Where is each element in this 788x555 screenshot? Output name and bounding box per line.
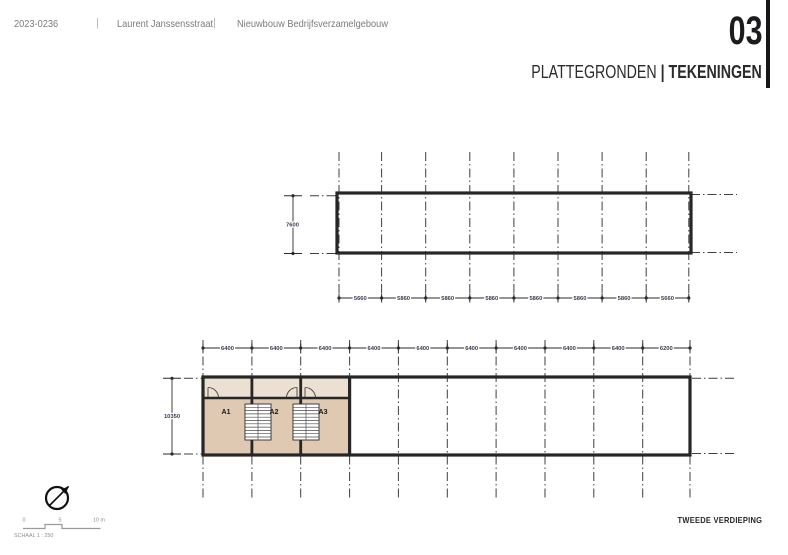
unit-label: A3	[319, 409, 328, 416]
floor-label: TWEEDE VERDIEPING	[677, 515, 762, 525]
dimension-label: 5860	[574, 296, 587, 302]
dimension-label: 6200	[660, 346, 673, 352]
scale-tick-label: 10 m	[93, 518, 105, 524]
dimension-label: 10350	[164, 414, 180, 420]
dimension-label: 6400	[368, 346, 381, 352]
scale-tick-label: 0	[23, 518, 26, 524]
top-plan-left-dimension: 7600	[284, 194, 302, 255]
scale-label: SCHAAL 1 : 250	[14, 533, 53, 539]
dimension-label: 7600	[286, 223, 299, 229]
dimension-label: 6400	[514, 346, 527, 352]
dimension-label: 5860	[529, 296, 542, 302]
dimension-label: 5860	[485, 296, 498, 302]
scale-tick-label: 5	[59, 518, 62, 524]
dimension-label: 5860	[618, 296, 631, 302]
unit-label: A2	[270, 409, 279, 416]
bottom-plan-left-dimension: 10350	[163, 377, 181, 456]
dimension-label: 6400	[221, 346, 234, 352]
dimension-label: 5660	[661, 296, 674, 302]
dimension-label: 6400	[465, 346, 478, 352]
top-plan-grid-lines	[310, 152, 737, 301]
dimension-label: 6400	[612, 346, 625, 352]
dimension-label: 6400	[563, 346, 576, 352]
north-arrow-icon	[46, 486, 69, 509]
dimension-label: 6400	[416, 346, 429, 352]
dimension-label: 5860	[397, 296, 410, 302]
floor-plan-drawing: 7600 5660 5860 5860 5860 5860 5860 5860 …	[0, 0, 788, 555]
bottom-plan-top-dimension-chain: 6400 6400 6400 6400 6400 6400 6400 6400 …	[201, 344, 691, 353]
scale-bar: 0 5 10 m SCHAAL 1 : 250	[14, 518, 106, 540]
dimension-label: 5660	[354, 296, 367, 302]
top-plan-bottom-dimension-chain: 5660 5860 5860 5860 5860 5860 5860 5660	[337, 294, 690, 303]
dimension-label: 5860	[441, 296, 454, 302]
bottom-plan-unit-fills	[205, 379, 350, 454]
stair-icon	[245, 404, 271, 440]
unit-label: A1	[222, 409, 231, 416]
dimension-label: 6400	[319, 346, 332, 352]
dimension-label: 6400	[270, 346, 283, 352]
stair-icon	[293, 404, 319, 440]
